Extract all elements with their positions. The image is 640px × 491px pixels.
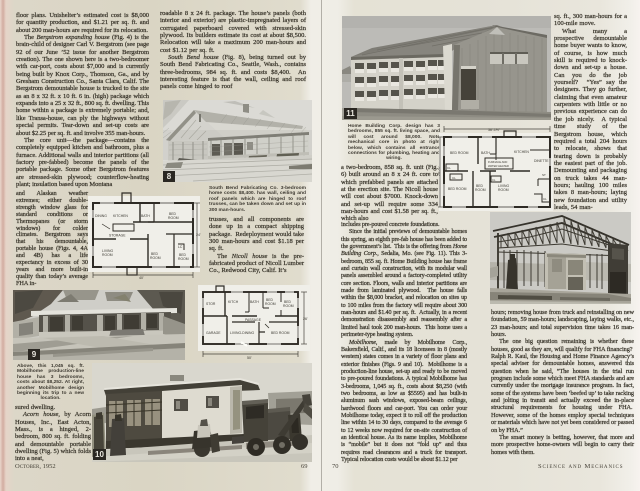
svg-text:ROOM: ROOM bbox=[498, 188, 509, 192]
svg-text:BED ROOM: BED ROOM bbox=[448, 187, 467, 191]
svg-text:36'-1½": 36'-1½" bbox=[488, 128, 501, 132]
svg-text:26': 26' bbox=[303, 317, 308, 321]
svg-text:ROOM: ROOM bbox=[283, 304, 294, 308]
svg-text:BATH: BATH bbox=[141, 214, 150, 218]
svg-text:FURNACE AND: FURNACE AND bbox=[488, 160, 507, 164]
svg-text:GARAGE: GARAGE bbox=[206, 331, 221, 335]
svg-text:ST: ST bbox=[542, 173, 546, 177]
svg-text:ROOM: ROOM bbox=[178, 257, 189, 261]
svg-text:DINING: DINING bbox=[95, 214, 107, 218]
svg-text:BED ROOM: BED ROOM bbox=[450, 151, 469, 155]
svg-text:CL: CL bbox=[543, 197, 547, 201]
svg-text:STOR: STOR bbox=[206, 302, 216, 306]
svg-text:24': 24' bbox=[196, 233, 201, 237]
svg-text:26'-¾": 26'-¾" bbox=[438, 165, 441, 176]
svg-text:LIVING-DINING: LIVING-DINING bbox=[230, 331, 254, 335]
svg-text:ROOM: ROOM bbox=[150, 256, 161, 260]
svg-text:ROOM: ROOM bbox=[168, 216, 179, 220]
svg-text:CL: CL bbox=[452, 176, 456, 180]
svg-text:40': 40' bbox=[139, 276, 144, 280]
svg-text:STORAGE: STORAGE bbox=[109, 234, 126, 238]
svg-text:BED ROOM: BED ROOM bbox=[271, 331, 290, 335]
svg-text:BATH: BATH bbox=[481, 151, 490, 155]
svg-text:PASSAGE: PASSAGE bbox=[245, 318, 262, 322]
svg-text:DINETTE: DINETTE bbox=[534, 159, 549, 163]
svg-text:CL: CL bbox=[492, 178, 496, 182]
svg-text:ROOM: ROOM bbox=[265, 302, 276, 306]
svg-text:ROOM: ROOM bbox=[102, 253, 113, 257]
svg-text:CL: CL bbox=[447, 166, 451, 170]
svg-text:KITCH: KITCH bbox=[228, 300, 239, 304]
svg-text:KITCHEN: KITCHEN bbox=[113, 214, 128, 218]
svg-text:WATER HEATER: WATER HEATER bbox=[488, 164, 509, 168]
svg-text:ROOM: ROOM bbox=[475, 188, 486, 192]
svg-text:LC: LC bbox=[178, 245, 183, 249]
svg-text:KITCHEN: KITCHEN bbox=[514, 150, 529, 154]
svg-text:50': 50' bbox=[247, 356, 252, 360]
svg-text:BATH: BATH bbox=[250, 300, 259, 304]
